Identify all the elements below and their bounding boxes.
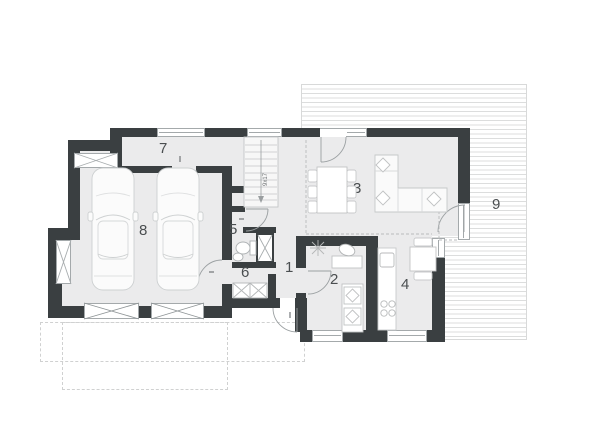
door-hall-room2 [308, 271, 331, 294]
door-entry-living [321, 137, 346, 162]
plant-icon [310, 240, 326, 256]
garage-door-x-patterns [84, 303, 204, 319]
staircase: 9x17 [244, 137, 278, 207]
kitchen-sink [380, 253, 394, 267]
stair-annotation: 9x17 [263, 172, 269, 186]
washer-dryer-stack [342, 284, 363, 332]
wardrobe [233, 283, 267, 298]
kitchen-fixtures [378, 238, 436, 330]
dining-table [308, 167, 356, 213]
wc-sink [233, 253, 243, 261]
corner-sofa [375, 155, 447, 212]
vanity-counter [332, 256, 362, 268]
door-hall-wc [246, 209, 268, 231]
floor-plan: 1 2 3 4 5 6 7 8 9 9x17 [0, 0, 615, 435]
door-main-entrance [273, 308, 297, 332]
kitchen-table [410, 238, 436, 280]
symbols-overlay: 9x17 [0, 0, 615, 435]
washbasin [338, 242, 357, 257]
car-1 [88, 168, 138, 290]
door-arcs [172, 137, 465, 332]
room2-fixtures [310, 240, 363, 332]
car-2 [153, 168, 203, 290]
